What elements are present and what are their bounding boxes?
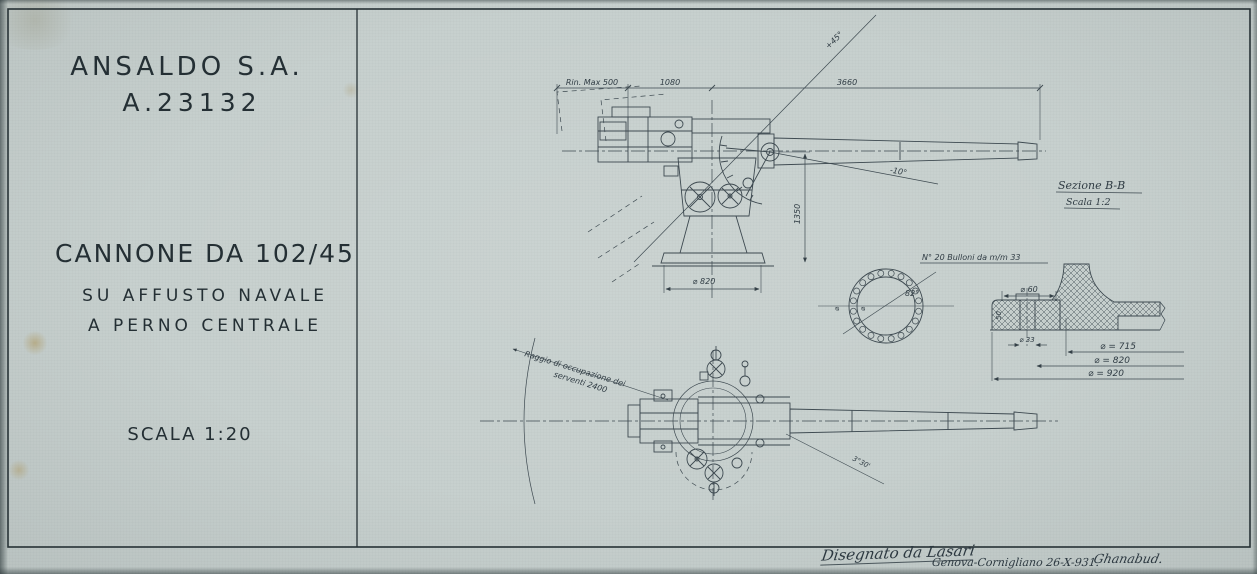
dim-axis-to-muzzle: 3660 [837, 78, 857, 87]
section-title: Sezione B-B [1058, 179, 1125, 192]
place-and-date: Genova-Cornigliano 26-X-931. [931, 556, 1100, 569]
dim-base-diameter: ⌀ 820 [693, 277, 716, 286]
section-scale: Scala 1:2 [1066, 197, 1111, 208]
dim-bolt-hole: ⌀ 33 [1019, 336, 1034, 344]
dim-inner-diameter: ⌀ = 715 [1100, 342, 1136, 352]
dim-axis-height: 1350 [793, 204, 802, 224]
bolt-note: N° 20 Bulloni da m/m 33 [922, 253, 1021, 262]
dim-seat: ⌀ 60 [1020, 285, 1038, 294]
dim-outer-diameter: ⌀ = 920 [1088, 369, 1124, 379]
max-elevation-angle: +45° [824, 30, 845, 51]
section-detail [990, 192, 1184, 381]
technical-drawing: Rin. Max 500 1080 3660 1350 ⌀ 820 +45° -… [0, 0, 1257, 574]
max-depression-angle: -10° [889, 166, 907, 178]
dim-bolt-circle-diameter: ⌀ = 820 [1094, 356, 1130, 366]
dim-recoil-max: Rin. Max 500 [566, 78, 618, 87]
dim-flange-thickness: 50 [995, 311, 1003, 320]
diameter-mark-1: ⌀ [833, 306, 841, 311]
diameter-mark-2: ⌀ [859, 306, 867, 311]
approval-signature: Ghanabud. [1092, 551, 1164, 566]
bolt-angle-label: 82° [905, 289, 919, 298]
blueprint-sheet: ANSALDO S.A. A.23132 CANNONE DA 102/45 S… [0, 0, 1257, 574]
dim-breech-to-axis: 1080 [660, 78, 680, 87]
train-angle-label: 3°30' [851, 455, 871, 471]
